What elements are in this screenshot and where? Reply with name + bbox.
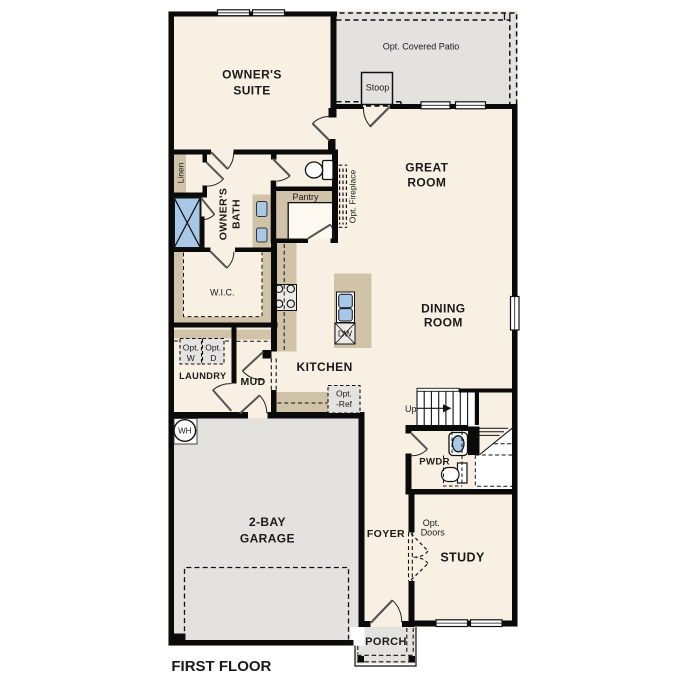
svg-text:PWDR: PWDR [419,457,450,468]
svg-text:BATH: BATH [231,199,243,229]
svg-text:GREAT: GREAT [405,161,448,175]
svg-text:LAUNDRY: LAUNDRY [179,371,226,381]
svg-text:Opt.: Opt. [205,343,221,353]
svg-text:Stoop: Stoop [366,83,390,93]
svg-text:ROOM: ROOM [424,316,463,330]
svg-text:Opt.: Opt. [183,343,199,353]
svg-text:-Ref: -Ref [336,399,353,409]
svg-text:KITCHEN: KITCHEN [297,360,353,374]
svg-text:Up: Up [405,404,417,414]
svg-text:FOYER: FOYER [367,528,405,540]
svg-text:Opt. Fireplace: Opt. Fireplace [348,170,358,224]
svg-text:Doors: Doors [421,528,446,538]
svg-text:ROOM: ROOM [407,176,446,190]
svg-text:WH: WH [178,427,192,436]
svg-text:FIRST FLOOR: FIRST FLOOR [171,658,271,675]
svg-text:DINING: DINING [421,302,465,316]
svg-text:W: W [187,353,195,363]
svg-text:OWNER'S: OWNER'S [218,188,230,241]
svg-text:SUITE: SUITE [233,84,270,98]
svg-text:OWNER'S: OWNER'S [222,68,282,82]
svg-text:Pantry: Pantry [292,192,319,202]
svg-text:GARAGE: GARAGE [240,532,295,546]
svg-text:W.I.C.: W.I.C. [210,287,235,297]
svg-text:Opt. Covered Patio: Opt. Covered Patio [383,42,460,52]
svg-text:MUD: MUD [241,376,266,388]
svg-text:STUDY: STUDY [440,551,485,565]
svg-text:2-BAY: 2-BAY [249,515,286,529]
svg-text:Linen: Linen [176,162,186,183]
svg-text:Opt.: Opt. [423,518,440,528]
svg-text:D: D [210,353,216,363]
svg-text:DW: DW [338,329,352,339]
svg-text:PORCH: PORCH [365,636,407,648]
svg-text:Opt.: Opt. [336,389,352,399]
